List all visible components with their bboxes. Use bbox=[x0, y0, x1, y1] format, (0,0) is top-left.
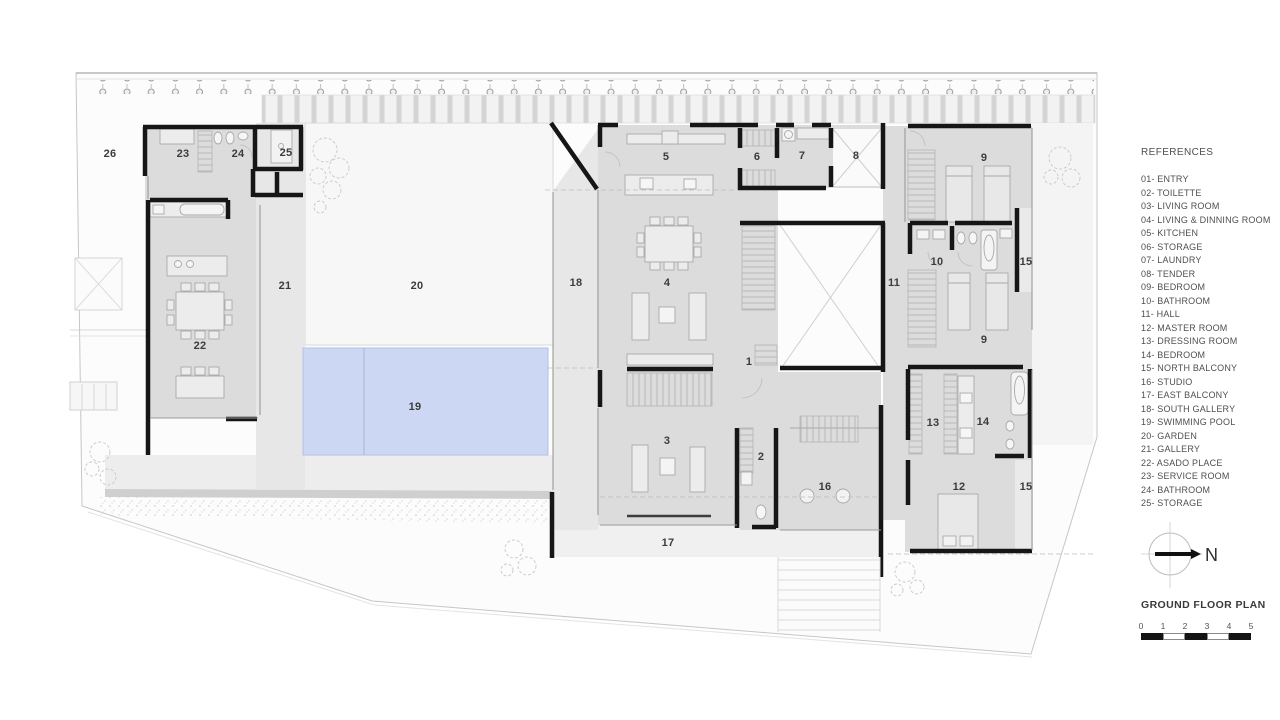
reference-item: 17- EAST BALCONY bbox=[1141, 389, 1280, 403]
reference-item: 10- BATHROOM bbox=[1141, 295, 1280, 309]
reference-item: 05- KITCHEN bbox=[1141, 227, 1280, 241]
legend-panel: REFERENCES 01- ENTRY02- TOILETTE03- LIVI… bbox=[1141, 147, 1280, 640]
plan-title: GROUND FLOOR PLAN bbox=[1141, 599, 1280, 611]
scale-number: 0 bbox=[1139, 621, 1144, 631]
north-arrow: N bbox=[1141, 517, 1280, 593]
reference-item: 04- LIVING & DINNING ROOM bbox=[1141, 214, 1280, 228]
reference-item: 18- SOUTH GALLERY bbox=[1141, 403, 1280, 417]
scale-number: 2 bbox=[1183, 621, 1188, 631]
reference-item: 07- LAUNDRY bbox=[1141, 254, 1280, 268]
swimming-pool bbox=[303, 348, 548, 455]
reference-item: 09- BEDROOM bbox=[1141, 281, 1280, 295]
reference-item: 02- TOILETTE bbox=[1141, 187, 1280, 201]
reference-item: 13- DRESSING ROOM bbox=[1141, 335, 1280, 349]
north-letter: N bbox=[1205, 545, 1218, 565]
scale-numbers: 012345 bbox=[1141, 621, 1273, 631]
garden-area bbox=[305, 123, 553, 345]
scale-segment bbox=[1163, 633, 1185, 640]
reference-item: 20- GARDEN bbox=[1141, 430, 1280, 444]
reference-item: 06- STORAGE bbox=[1141, 241, 1280, 255]
east-yard bbox=[1032, 123, 1093, 445]
reference-item: 03- LIVING ROOM bbox=[1141, 200, 1280, 214]
floor-plan-canvas bbox=[0, 0, 1280, 720]
reference-item: 19- SWIMMING POOL bbox=[1141, 416, 1280, 430]
scale-segment bbox=[1229, 633, 1251, 640]
reference-item: 21- GALLERY bbox=[1141, 443, 1280, 457]
pergola-slats bbox=[262, 95, 1095, 123]
references-title: REFERENCES bbox=[1141, 147, 1280, 158]
reference-item: 11- HALL bbox=[1141, 308, 1280, 322]
reference-item: 01- ENTRY bbox=[1141, 173, 1280, 187]
scale-number: 4 bbox=[1227, 621, 1232, 631]
reference-item: 24- BATHROOM bbox=[1141, 484, 1280, 498]
reference-item: 25- STORAGE bbox=[1141, 497, 1280, 511]
reference-item: 08- TENDER bbox=[1141, 268, 1280, 282]
scale-segment bbox=[1207, 633, 1229, 640]
reference-item: 16- STUDIO bbox=[1141, 376, 1280, 390]
scale-segment bbox=[1141, 633, 1163, 640]
reference-item: 12- MASTER ROOM bbox=[1141, 322, 1280, 336]
reference-item: 23- SERVICE ROOM bbox=[1141, 470, 1280, 484]
north-arrow-icon: N bbox=[1141, 517, 1280, 593]
scale-segment bbox=[1185, 633, 1207, 640]
floor-plan-page: 2623242556789101518411212092211913143216… bbox=[0, 0, 1280, 720]
reference-item: 15- NORTH BALCONY bbox=[1141, 362, 1280, 376]
scale-number: 3 bbox=[1205, 621, 1210, 631]
reference-item: 22- ASADO PLACE bbox=[1141, 457, 1280, 471]
scale-segments bbox=[1141, 633, 1273, 640]
references-list: 01- ENTRY02- TOILETTE03- LIVING ROOM04- … bbox=[1141, 173, 1280, 511]
scale-bar: 012345 bbox=[1141, 621, 1273, 640]
scale-number: 5 bbox=[1249, 621, 1254, 631]
scale-number: 1 bbox=[1161, 621, 1166, 631]
reference-item: 14- BEDROOM bbox=[1141, 349, 1280, 363]
pool-deck-walkway bbox=[105, 455, 553, 491]
